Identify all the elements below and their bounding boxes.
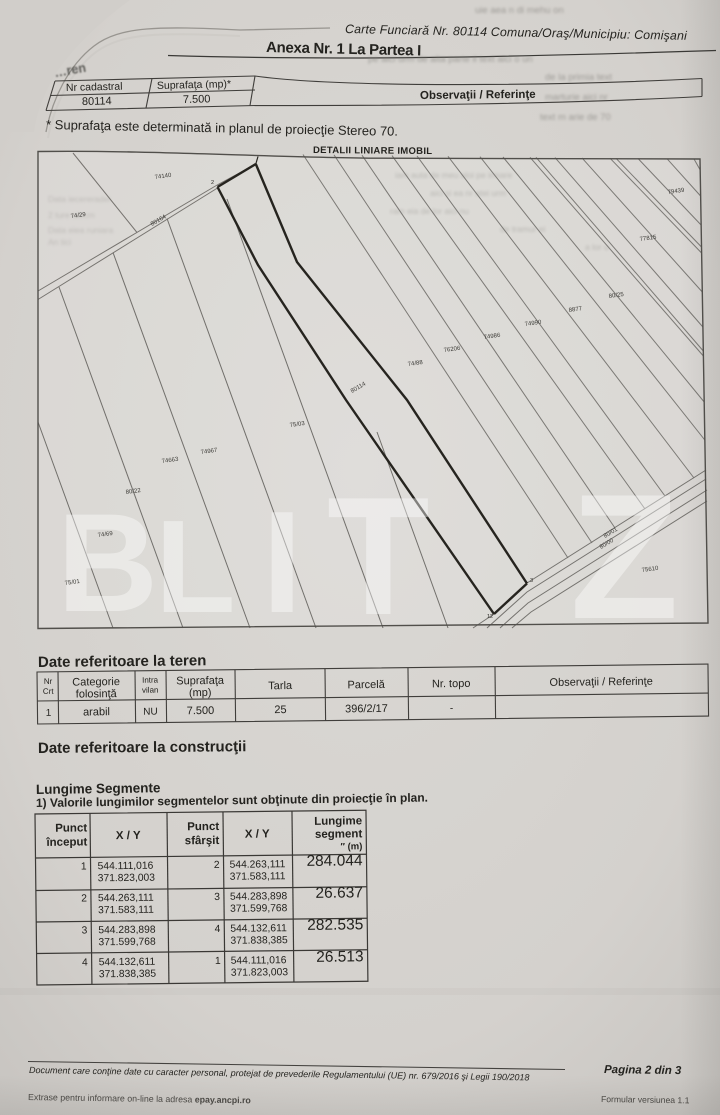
svg-text:3: 3 bbox=[530, 578, 533, 584]
svg-text:371.823,003: 371.823,003 bbox=[231, 967, 289, 979]
svg-text:sfârşit: sfârşit bbox=[185, 835, 220, 847]
svg-text:2: 2 bbox=[214, 860, 220, 871]
svg-text:3: 3 bbox=[214, 892, 220, 903]
svg-text:544.111,016: 544.111,016 bbox=[98, 861, 154, 873]
svg-text:544.283,898: 544.283,898 bbox=[98, 925, 156, 937]
svg-text:396/2/17: 396/2/17 bbox=[345, 703, 388, 716]
svg-text:L: L bbox=[155, 493, 236, 640]
svg-text:Data eiea runiara: Data eiea runiara bbox=[48, 225, 113, 235]
svg-text:7.500: 7.500 bbox=[187, 705, 215, 717]
svg-text:T: T bbox=[327, 462, 430, 650]
svg-text:Punct: Punct bbox=[55, 822, 87, 834]
svg-text:2: 2 bbox=[211, 180, 214, 186]
svg-text:Punct: Punct bbox=[187, 821, 219, 833]
svg-text:4: 4 bbox=[215, 924, 221, 935]
svg-text:544.132,611: 544.132,611 bbox=[230, 923, 287, 935]
svg-text:371.583,111: 371.583,111 bbox=[230, 871, 286, 883]
svg-text:Crt: Crt bbox=[43, 687, 55, 696]
svg-text:Intra: Intra bbox=[142, 676, 159, 685]
svg-text:început: început bbox=[45, 836, 87, 848]
svg-text:Date referitoare la construcţi: Date referitoare la construcţii bbox=[38, 738, 247, 757]
svg-text:de la primia text: de la primia text bbox=[545, 72, 612, 83]
svg-text:25: 25 bbox=[274, 704, 286, 716]
svg-text:544.283,898: 544.283,898 bbox=[230, 891, 288, 903]
svg-text:371.838,385: 371.838,385 bbox=[99, 969, 157, 981]
svg-text:80114: 80114 bbox=[82, 95, 112, 108]
svg-text:7.500: 7.500 bbox=[183, 93, 211, 106]
svg-text:Observaţii / Referinţe: Observaţii / Referinţe bbox=[549, 676, 652, 689]
svg-text:vilan: vilan bbox=[142, 686, 159, 695]
svg-text:NU: NU bbox=[143, 707, 158, 718]
svg-text:I: I bbox=[262, 481, 302, 643]
svg-text:text m arie de 70: text m arie de 70 bbox=[540, 112, 611, 123]
svg-text:folosinţă: folosinţă bbox=[76, 688, 118, 700]
svg-text:arabil: arabil bbox=[83, 706, 110, 718]
svg-text:544.111,016: 544.111,016 bbox=[231, 955, 287, 967]
svg-text:544.263,111: 544.263,111 bbox=[98, 893, 154, 905]
svg-text:Lungime: Lungime bbox=[314, 815, 362, 828]
svg-text:Categorie: Categorie bbox=[72, 676, 120, 689]
svg-text:Nr: Nr bbox=[44, 677, 53, 686]
svg-text:26.637: 26.637 bbox=[315, 884, 363, 902]
svg-text:282.535: 282.535 bbox=[307, 916, 363, 934]
svg-text:4: 4 bbox=[82, 957, 88, 968]
svg-text:-: - bbox=[450, 703, 453, 714]
svg-text:pe aici urm de alta parte il t: pe aici urm de alta parte il text aici o… bbox=[368, 54, 533, 65]
svg-text:Tarla: Tarla bbox=[268, 680, 293, 692]
svg-text:Nr cadastral: Nr cadastral bbox=[66, 81, 123, 94]
svg-text:Observaţii / Referinţe: Observaţii / Referinţe bbox=[420, 89, 536, 102]
svg-text:′′ (m): ′′ (m) bbox=[340, 841, 362, 852]
svg-text:(mp): (mp) bbox=[189, 687, 212, 699]
svg-text:371.823,003: 371.823,003 bbox=[98, 873, 156, 885]
svg-text:Formular versiunea 1.1: Formular versiunea 1.1 bbox=[601, 1094, 690, 1105]
svg-text:371.599,768: 371.599,768 bbox=[230, 903, 288, 915]
svg-text:Pagina 2 din 3: Pagina 2 din 3 bbox=[604, 1064, 682, 1077]
svg-text:1: 1 bbox=[46, 708, 52, 719]
svg-text:Suprafaţa (mp)*: Suprafaţa (mp)* bbox=[157, 78, 231, 92]
svg-text:X / Y: X / Y bbox=[116, 830, 141, 842]
svg-text:Parcelă: Parcelă bbox=[347, 679, 385, 691]
svg-text:uie aea n di mehu on: uie aea n di mehu on bbox=[475, 5, 564, 16]
svg-text:26.513: 26.513 bbox=[316, 948, 364, 966]
svg-text:Z: Z bbox=[570, 457, 679, 656]
svg-text:3: 3 bbox=[82, 925, 88, 936]
svg-text:B: B bbox=[57, 484, 158, 641]
svg-text:Nr. topo: Nr. topo bbox=[432, 678, 471, 690]
svg-text:2: 2 bbox=[81, 893, 87, 904]
svg-text:544.132,611: 544.132,611 bbox=[99, 957, 156, 969]
svg-text:Suprafaţa: Suprafaţa bbox=[176, 675, 225, 688]
svg-text:371.583,111: 371.583,111 bbox=[98, 905, 154, 917]
svg-text:X / Y: X / Y bbox=[245, 828, 270, 840]
svg-text:segment: segment bbox=[315, 828, 363, 841]
svg-text:Data iecereradei: Data iecereradei bbox=[48, 194, 110, 204]
svg-text:An tici: An tici bbox=[48, 237, 71, 247]
svg-text:544.263,111: 544.263,111 bbox=[230, 859, 286, 871]
svg-text:371.599,768: 371.599,768 bbox=[98, 937, 156, 949]
svg-text:12: 12 bbox=[487, 614, 493, 620]
svg-text:Date referitoare la teren: Date referitoare la teren bbox=[38, 652, 207, 671]
svg-text:371.838,385: 371.838,385 bbox=[230, 935, 288, 947]
svg-text:DETALII LINIARE IMOBIL: DETALII LINIARE IMOBIL bbox=[313, 145, 432, 157]
svg-text:1: 1 bbox=[81, 861, 87, 872]
svg-text:284.044: 284.044 bbox=[306, 852, 363, 870]
svg-text:1: 1 bbox=[215, 956, 221, 967]
